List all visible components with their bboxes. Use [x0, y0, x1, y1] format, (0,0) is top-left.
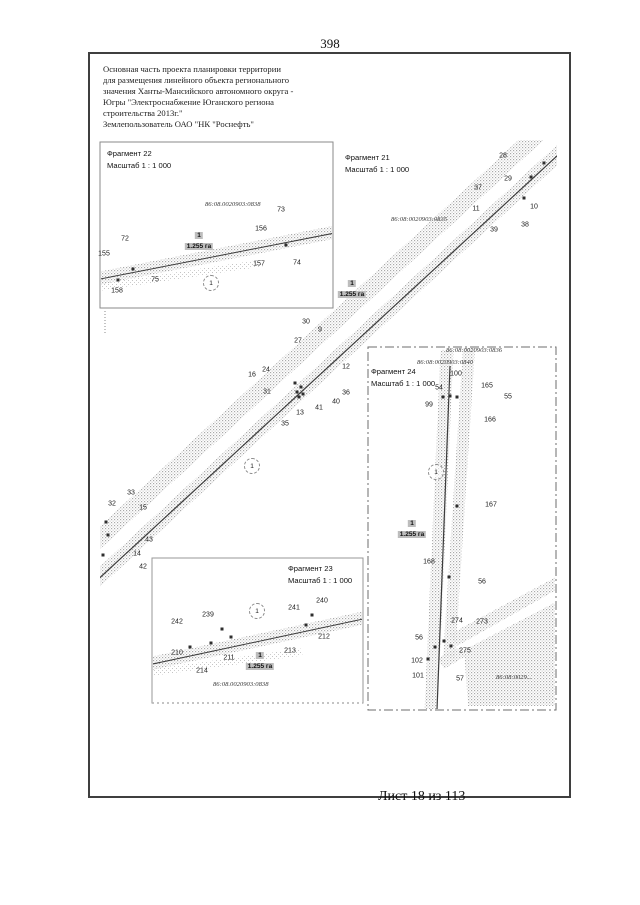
point-marker — [530, 176, 533, 179]
point-label: 156 — [255, 226, 267, 233]
point-marker — [456, 505, 459, 508]
parcel-area: 1.255 га — [246, 663, 274, 670]
point-marker — [221, 628, 224, 631]
point-label: 32 — [108, 501, 116, 508]
fragment22-title: Фрагмент 22 — [107, 148, 171, 160]
point-marker — [434, 646, 437, 649]
point-label: 167 — [485, 502, 497, 509]
point-label: 54 — [435, 385, 443, 392]
fragment22-title-block: Фрагмент 22 Масштаб 1 : 1 000 — [107, 148, 171, 171]
point-label: 24 — [262, 367, 270, 374]
fragment23-title-block: Фрагмент 23 Масштаб 1 : 1 000 — [288, 563, 352, 586]
point-label: 212 — [318, 634, 330, 641]
point-label: 27 — [294, 338, 302, 345]
point-label: 72 — [121, 236, 129, 243]
point-label: 14 — [133, 551, 141, 558]
point-marker — [107, 534, 110, 537]
point-marker — [105, 521, 108, 524]
point-marker — [427, 658, 430, 661]
point-label: 155 — [98, 251, 110, 258]
point-label: 273 — [476, 619, 488, 626]
parcel-number: 1 — [256, 652, 264, 659]
point-label: 158 — [111, 288, 123, 295]
area-label: 11.255 га — [398, 512, 426, 538]
point-label: 38 — [521, 222, 529, 229]
point-label: 241 — [288, 605, 300, 612]
point-label: 40 — [332, 399, 340, 406]
point-label: 35 — [281, 421, 289, 428]
point-label: 214 — [196, 668, 208, 675]
point-label: 55 — [504, 394, 512, 401]
parcel-number: 1 — [348, 280, 356, 287]
point-label: 75 — [151, 277, 159, 284]
cadastral-number: 86:08:0020903:0840 — [417, 359, 473, 366]
cadastral-number: 86:08:0020903:0836 — [446, 347, 502, 354]
point-label: 16 — [248, 372, 256, 379]
point-label: 30 — [302, 319, 310, 326]
parcel-circle: 1 — [428, 464, 444, 480]
point-label: 242 — [171, 619, 183, 626]
point-marker — [523, 197, 526, 200]
point-label: 12 — [342, 364, 350, 371]
point-label: 166 — [484, 417, 496, 424]
point-label: 157 — [253, 261, 265, 268]
point-marker — [117, 279, 120, 282]
point-marker — [543, 162, 546, 165]
point-marker — [305, 624, 308, 627]
map-labels-layer: 7215575158731561577428293711103839309271… — [0, 0, 640, 905]
fragment21-title: Фрагмент 21 — [345, 152, 409, 164]
point-label: 274 — [451, 618, 463, 625]
point-label: 10 — [530, 204, 538, 211]
point-label: 11 — [472, 206, 479, 213]
fragment22-scale: Масштаб 1 : 1 000 — [107, 160, 171, 172]
fragment23-scale: Масштаб 1 : 1 000 — [288, 575, 352, 587]
parcel-area: 1.255 га — [338, 291, 366, 298]
parcel-circle: 1 — [249, 603, 265, 619]
point-marker — [443, 640, 446, 643]
point-label: 165 — [481, 383, 493, 390]
point-marker — [285, 244, 288, 247]
point-label: 31 — [263, 389, 271, 396]
point-label: 240 — [316, 598, 328, 605]
point-marker — [449, 395, 452, 398]
point-label: 102 — [411, 658, 423, 665]
fragment23-title: Фрагмент 23 — [288, 563, 352, 575]
parcel-number: 1 — [408, 520, 416, 527]
parcel-circle: 1 — [244, 458, 260, 474]
point-marker — [456, 396, 459, 399]
point-marker — [102, 554, 105, 557]
point-marker — [300, 386, 303, 389]
point-label: 15 — [139, 505, 147, 512]
cadastral-number: 86:08.0020903:0838 — [213, 681, 269, 688]
point-label: 213 — [284, 648, 296, 655]
point-label: 37 — [474, 185, 482, 192]
document-page: 398 Основная часть проекта планировки те… — [0, 0, 640, 905]
point-label: 56 — [415, 635, 423, 642]
point-label: 57 — [456, 676, 464, 683]
point-label: 41 — [315, 405, 323, 412]
area-label: 11.255 га — [338, 272, 366, 298]
fragment21-scale: Масштаб 1 : 1 000 — [345, 164, 409, 176]
parcel-number: 1 — [195, 232, 203, 239]
point-label: 101 — [412, 673, 424, 680]
point-marker — [448, 576, 451, 579]
point-label: 13 — [296, 410, 304, 417]
point-marker — [311, 614, 314, 617]
point-label: 39 — [490, 227, 498, 234]
cadastral-number: 86:08:0029... — [496, 674, 532, 681]
point-marker — [230, 636, 233, 639]
point-label: 28 — [499, 153, 507, 160]
point-label: 74 — [293, 260, 301, 267]
point-label: 36 — [342, 390, 350, 397]
cadastral-number: 86:08:0020903:0835 — [391, 216, 447, 223]
fragment24-title: Фрагмент 24 — [371, 366, 435, 378]
parcel-area: 1.255 га — [185, 243, 213, 250]
fragment21-title-block: Фрагмент 21 Масштаб 1 : 1 000 — [345, 152, 409, 175]
point-label: 275 — [459, 648, 471, 655]
point-marker — [210, 642, 213, 645]
parcel-circle: 1 — [203, 275, 219, 291]
point-label: 29 — [504, 176, 512, 183]
point-marker — [296, 391, 299, 394]
point-label: 210 — [171, 650, 183, 657]
point-marker — [132, 268, 135, 271]
point-label: 56 — [478, 579, 486, 586]
point-marker — [294, 382, 297, 385]
sheet-footer: Лист 18 из 113 — [378, 789, 465, 805]
fragment24-scale: Масштаб 1 : 1 000 — [371, 378, 435, 390]
point-label: 239 — [202, 612, 214, 619]
fragment24-title-block: Фрагмент 24 Масштаб 1 : 1 000 — [371, 366, 435, 389]
parcel-area: 1.255 га — [398, 531, 426, 538]
point-label: 100 — [450, 371, 462, 378]
point-marker — [450, 645, 453, 648]
point-label: 99 — [425, 402, 433, 409]
area-label: 11.255 га — [185, 224, 213, 250]
point-label: 43 — [145, 537, 153, 544]
point-label: 9 — [318, 327, 322, 334]
cadastral-number: 86:08.0020903:0838 — [205, 201, 261, 208]
point-marker — [298, 396, 301, 399]
point-marker — [442, 396, 445, 399]
point-marker — [189, 646, 192, 649]
point-label: 168 — [423, 559, 435, 566]
point-marker — [302, 393, 305, 396]
area-label: 11.255 га — [246, 644, 274, 670]
point-label: 42 — [139, 564, 147, 571]
point-label: 211 — [223, 655, 234, 662]
point-label: 33 — [127, 490, 135, 497]
point-label: 73 — [277, 207, 285, 214]
